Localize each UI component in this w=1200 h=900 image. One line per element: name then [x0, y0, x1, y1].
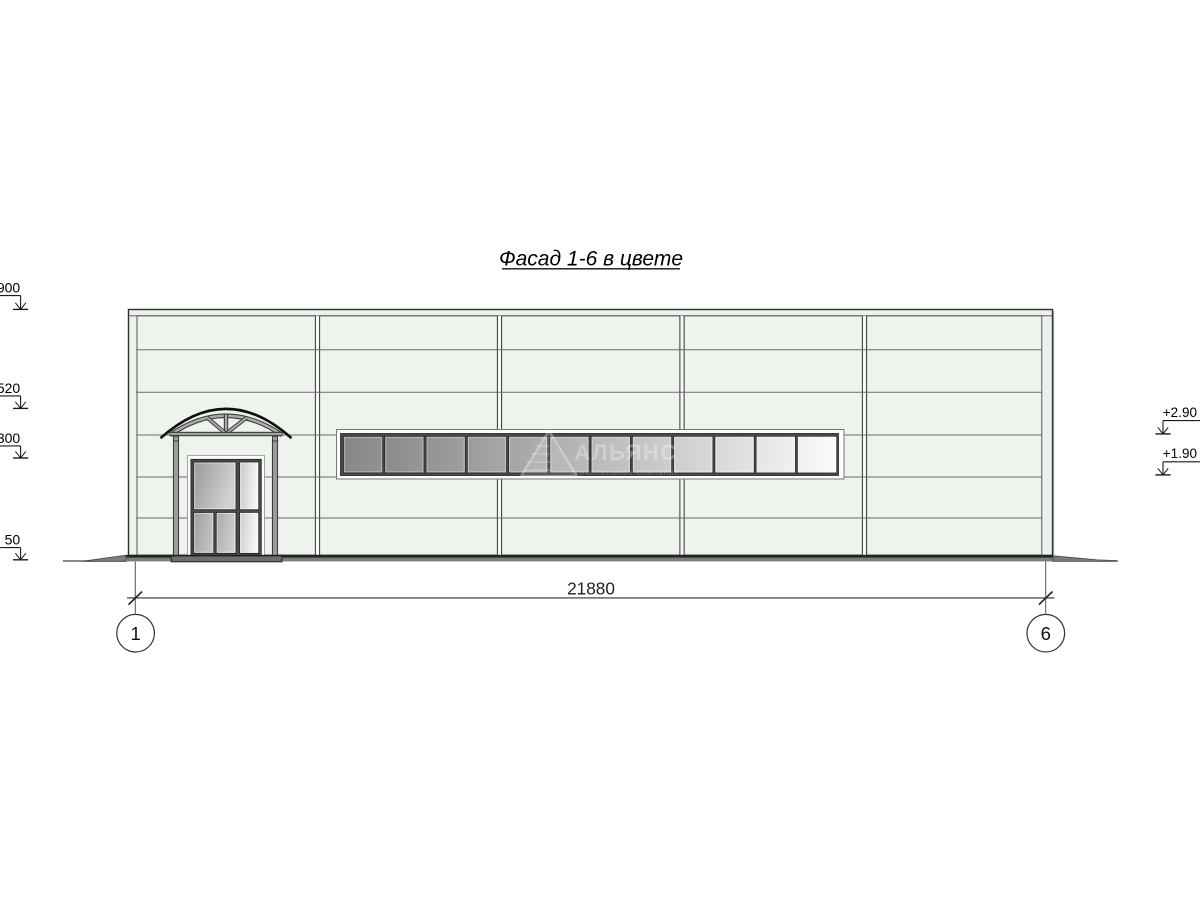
svg-text:АЛЬЯНС: АЛЬЯНС: [574, 440, 677, 465]
svg-text:+2.90: +2.90: [1163, 405, 1197, 420]
svg-text:21880: 21880: [567, 579, 615, 599]
svg-text:900: 900: [0, 280, 20, 296]
svg-text:50: 50: [5, 532, 21, 548]
svg-text:Фасад 1-6 в цвете: Фасад 1-6 в цвете: [499, 248, 683, 271]
svg-text:520: 520: [0, 380, 20, 396]
svg-text:6: 6: [1041, 623, 1051, 644]
svg-text:+1.90: +1.90: [1163, 446, 1197, 461]
svg-text:300: 300: [0, 430, 20, 446]
svg-text:1: 1: [130, 623, 140, 644]
svg-text:строительная компания: строительная компания: [570, 468, 680, 477]
